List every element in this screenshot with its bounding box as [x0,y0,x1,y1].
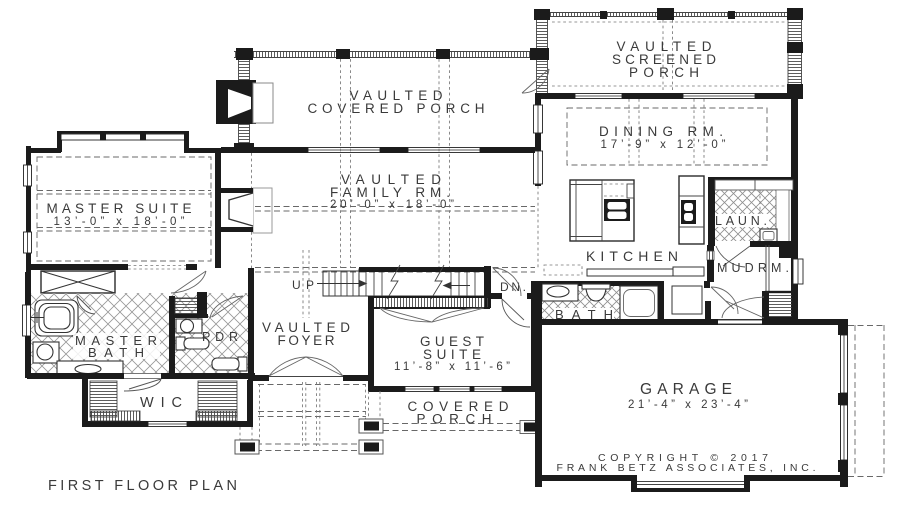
svg-text:WIC: WIC [140,395,182,411]
svg-text:FIRST FLOOR PLAN: FIRST FLOOR PLAN [48,478,237,494]
svg-text:DN.: DN. [500,280,526,294]
svg-text:PDR: PDR [202,330,238,344]
svg-text:SUITE: SUITE [423,347,481,362]
svg-text:MASTER SUITE: MASTER SUITE [47,201,192,216]
